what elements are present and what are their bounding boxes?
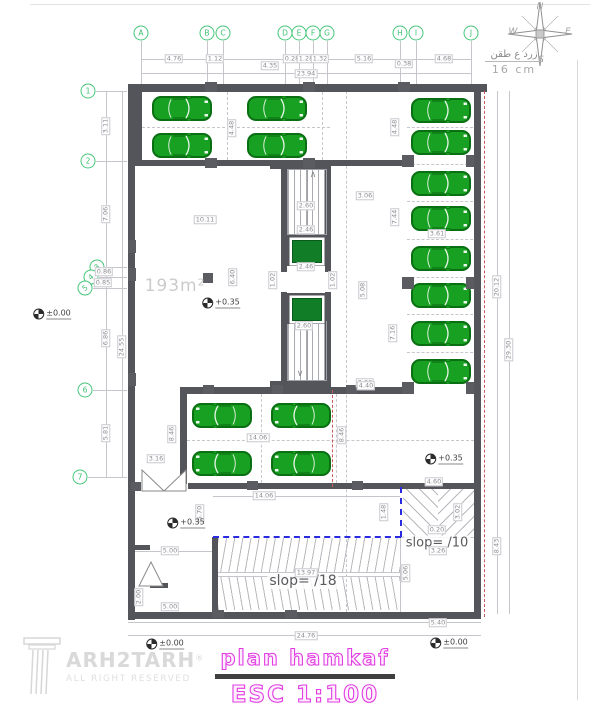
dimension-label: 4.40 xyxy=(357,381,375,390)
dimension-label: 5.06 xyxy=(401,564,410,582)
dimension-label: 1.02 xyxy=(328,271,337,289)
grid-bubble-f: F xyxy=(306,26,321,41)
level-value: +0.35 xyxy=(215,298,240,309)
level-flag-icon xyxy=(33,309,44,320)
area-label: 193m² xyxy=(145,276,206,296)
grid-bubble-h: H xyxy=(393,26,408,41)
dimension-label: 5.81 xyxy=(101,424,110,442)
dimension-label: 2.60 xyxy=(295,321,313,330)
grid-bubble-g: G xyxy=(320,26,335,41)
dimension-label: 10.11 xyxy=(194,215,217,224)
dimension-label: 29.30 xyxy=(504,339,513,362)
level-marker: ±0.00 xyxy=(33,309,71,320)
grid-bubble-1: 1 xyxy=(81,84,96,99)
dimension-label: 2.00 xyxy=(134,588,143,606)
dimension-label: 4.48 xyxy=(390,118,399,136)
dimension-label: 0.38 xyxy=(395,59,413,68)
dimension-label: 13.97 xyxy=(295,568,318,577)
grid-bubble-7: 7 xyxy=(73,470,88,485)
grid-bubble-d: D xyxy=(278,26,293,41)
grid-bubble-b: B xyxy=(200,26,215,41)
dimension-label: 24.76 xyxy=(295,631,318,640)
dimension-label: 2.60 xyxy=(297,201,315,210)
dimension-label: 4.48 xyxy=(227,119,236,137)
dimension-label: 20.12 xyxy=(492,276,501,299)
dimension-label: 6.86 xyxy=(101,329,110,347)
dimension-label: 0.20 xyxy=(428,525,446,534)
dimension-label: 4.60 xyxy=(425,477,443,486)
dimension-label: 3.16 xyxy=(147,454,165,463)
dimension-label: 5.00 xyxy=(161,546,179,555)
level-flag-icon xyxy=(202,298,213,309)
grid-bubble-a: A xyxy=(134,26,149,41)
dimension-label: 7.16 xyxy=(388,324,397,342)
logo-registered-mark: ® xyxy=(195,654,203,663)
level-value: +0.35 xyxy=(180,518,205,529)
dimension-label: 1.12 xyxy=(206,54,224,63)
dimension-label: 5.08 xyxy=(358,281,367,299)
level-flag-icon xyxy=(167,518,178,529)
dimension-label: 3.61 xyxy=(428,229,446,238)
dimension-label: 8.46 xyxy=(167,425,176,443)
dimension-label: 3.06 xyxy=(356,191,374,200)
logo-brand-text: ARH2TARH xyxy=(66,648,195,672)
dimension-label: 14.06 xyxy=(253,491,276,500)
dimension-label: 1.32 xyxy=(311,54,329,63)
dimension-label: 4.68 xyxy=(435,54,453,63)
level-flag-icon xyxy=(425,454,436,465)
level-value: ±0.00 xyxy=(46,309,71,320)
dimension-label: 5.40 xyxy=(429,618,447,627)
title-block: plan hamkaf ESC 1:100 xyxy=(160,646,450,708)
grid-bubble-c: C xyxy=(216,26,231,41)
grid-bubble-i: I xyxy=(409,26,424,41)
stair-direction-mark: ∧ xyxy=(310,170,317,180)
column-icon xyxy=(22,636,62,698)
plan-scale: ESC 1:100 xyxy=(160,682,450,708)
stair-direction-mark: ∨ xyxy=(297,369,304,379)
level-marker: +0.35 xyxy=(425,454,463,465)
grid-bubble-e: E xyxy=(292,26,307,41)
dimension-label: 0.85 xyxy=(94,278,112,287)
logo-tagline: ALL RIGHT RESERVED xyxy=(66,674,203,684)
dimension-label: 8.46 xyxy=(337,426,346,444)
dimension-label: 7.06 xyxy=(101,205,110,223)
door-swings xyxy=(0,0,606,720)
dimension-label: 23.94 xyxy=(295,69,318,78)
level-value: +0.35 xyxy=(438,454,463,465)
grid-bubble-j: J xyxy=(464,26,479,41)
dimension-label: 0.86 xyxy=(95,267,113,276)
level-marker: +0.35 xyxy=(202,298,240,309)
dimension-label: 5.16 xyxy=(355,54,373,63)
title-underline-bar xyxy=(215,674,395,679)
watermark-logo: ARH2TARH® ALL RIGHT RESERVED xyxy=(22,636,203,698)
dimension-label: 8.43 xyxy=(492,537,501,555)
dimension-label: 1.02 xyxy=(268,271,277,289)
floor-plan-canvas: N E S W زرد ع طقن 16 cm xyxy=(0,0,606,720)
dimension-label: 7.44 xyxy=(390,208,399,226)
grid-bubble-6: 6 xyxy=(78,383,93,398)
dimension-label: 4.35 xyxy=(261,61,279,70)
dimension-label: 2.46 xyxy=(297,262,315,271)
dimension-label: 3.11 xyxy=(101,117,110,135)
dimension-label: 2.46 xyxy=(297,225,315,234)
dimension-label: 24.55 xyxy=(117,336,126,359)
dimension-label: 6.40 xyxy=(228,268,237,286)
dimension-label: 1.48 xyxy=(379,503,388,521)
dimension-label: 3.02 xyxy=(453,503,462,521)
plan-title: plan hamkaf xyxy=(160,646,450,670)
level-marker: +0.35 xyxy=(167,518,205,529)
dimension-label: 5.00 xyxy=(161,602,179,611)
grid-bubble-2: 2 xyxy=(81,154,96,169)
dimension-label: 14.06 xyxy=(247,433,270,442)
dimension-label: 3.26 xyxy=(429,546,447,555)
dimension-label: 4.76 xyxy=(165,54,183,63)
